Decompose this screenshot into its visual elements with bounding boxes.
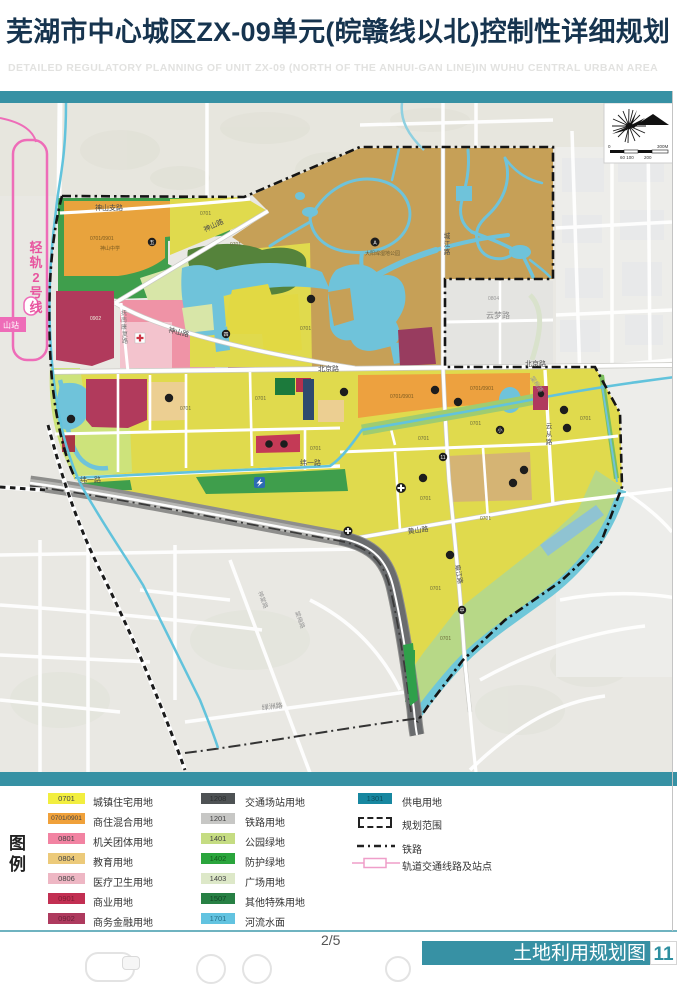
svg-text:60 100: 60 100 [620,155,634,160]
svg-text:城: 城 [444,232,451,240]
svg-text:号: 号 [29,285,42,300]
svg-text:0701: 0701 [440,636,451,642]
svg-text:0701/0901: 0701/0901 [390,394,414,400]
svg-text:小: 小 [497,427,502,434]
svg-text:0701: 0701 [430,586,441,592]
svg-text:轻: 轻 [29,240,42,255]
svg-text:0701: 0701 [200,211,211,217]
svg-text:南: 南 [121,316,127,324]
svg-text:抚: 抚 [121,309,127,317]
svg-text:神山中学: 神山中学 [100,245,120,252]
svg-text:300M: 300M [657,144,669,149]
svg-text:云梦路: 云梦路 [486,310,510,320]
svg-text:四: 四 [223,332,228,338]
svg-text:0701: 0701 [580,416,591,422]
svg-text:北京路: 北京路 [318,364,339,373]
svg-text:0701: 0701 [230,242,241,248]
svg-text:200: 200 [644,155,652,160]
svg-text:复: 复 [122,330,128,338]
svg-text:路: 路 [444,247,451,256]
svg-text:北京路: 北京路 [525,359,546,368]
svg-text:五: 五 [149,240,154,246]
svg-text:从: 从 [546,431,553,438]
svg-text:0701: 0701 [310,446,321,452]
svg-text:0902: 0902 [90,316,101,322]
svg-text:0804: 0804 [488,296,499,302]
svg-text:神山支路: 神山支路 [95,203,123,212]
svg-text:0701/0901: 0701/0901 [470,386,494,392]
svg-text:0701: 0701 [418,436,429,442]
svg-text:线: 线 [29,300,42,315]
svg-text:路: 路 [546,437,553,446]
svg-text:11: 11 [440,455,445,461]
svg-text:轨: 轨 [29,255,42,270]
svg-text:山站: 山站 [3,320,19,330]
svg-text:0701: 0701 [255,396,266,402]
svg-text:0701/0901: 0701/0901 [90,236,114,242]
svg-text:0701: 0701 [470,421,481,427]
svg-text:江: 江 [444,240,451,248]
svg-text:纬一路: 纬一路 [80,475,101,484]
svg-text:路: 路 [122,337,128,345]
svg-text:0701: 0701 [180,406,191,412]
svg-text:纬一路: 纬一路 [300,458,321,467]
svg-text:0701: 0701 [420,496,431,502]
svg-text:2: 2 [32,270,39,285]
svg-text:0701: 0701 [480,516,491,522]
svg-text:大阳垾湿地公园: 大阳垾湿地公园 [365,250,400,257]
svg-text:中: 中 [459,607,464,614]
svg-text:康: 康 [121,323,127,331]
svg-text:云: 云 [546,422,553,430]
svg-text:0701: 0701 [300,326,311,332]
